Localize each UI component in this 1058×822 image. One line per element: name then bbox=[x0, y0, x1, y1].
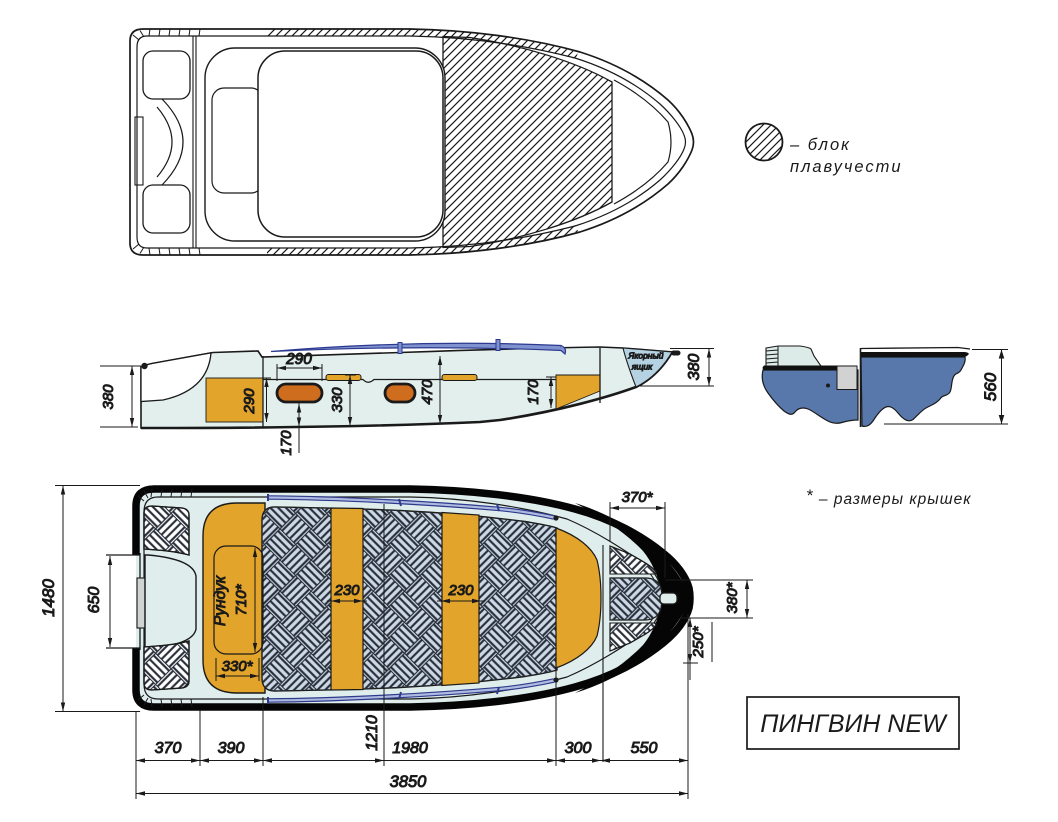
svg-text:290: 290 bbox=[241, 388, 258, 415]
svg-text:1210: 1210 bbox=[364, 715, 381, 751]
svg-text:плавучести: плавучести bbox=[790, 158, 903, 176]
svg-text:* – размеры крышек: * – размеры крышек bbox=[806, 486, 972, 508]
svg-text:370: 370 bbox=[155, 740, 182, 757]
svg-text:3850: 3850 bbox=[390, 773, 428, 791]
svg-text:230: 230 bbox=[333, 582, 360, 599]
svg-text:ПИНГВИН NEW: ПИНГВИН NEW bbox=[760, 710, 948, 738]
svg-text:550: 550 bbox=[631, 740, 658, 757]
svg-text:380*: 380* bbox=[724, 581, 741, 613]
svg-text:650: 650 bbox=[86, 587, 103, 614]
svg-text:Якорный: Якорный bbox=[628, 351, 664, 361]
svg-text:ящик: ящик bbox=[631, 362, 654, 372]
svg-text:1480: 1480 bbox=[39, 579, 58, 617]
svg-text:710*: 710* bbox=[233, 583, 250, 615]
svg-text:250*: 250* bbox=[690, 625, 707, 658]
svg-text:230: 230 bbox=[447, 582, 474, 599]
svg-text:380: 380 bbox=[100, 384, 117, 410]
svg-text:170: 170 bbox=[278, 430, 295, 456]
svg-text:330: 330 bbox=[329, 387, 346, 413]
svg-text:300: 300 bbox=[565, 740, 592, 757]
svg-text:330*: 330* bbox=[222, 658, 254, 675]
svg-text:290: 290 bbox=[285, 351, 312, 368]
svg-text:370*: 370* bbox=[622, 489, 654, 506]
svg-text:380: 380 bbox=[686, 354, 703, 381]
svg-text:170: 170 bbox=[525, 379, 542, 405]
svg-text:1980: 1980 bbox=[392, 740, 428, 757]
svg-text:Рундук: Рундук bbox=[212, 575, 229, 626]
svg-text:560: 560 bbox=[981, 372, 1000, 401]
svg-text:– блок: – блок bbox=[789, 136, 851, 154]
svg-text:470: 470 bbox=[419, 379, 436, 405]
svg-text:390: 390 bbox=[218, 740, 245, 757]
